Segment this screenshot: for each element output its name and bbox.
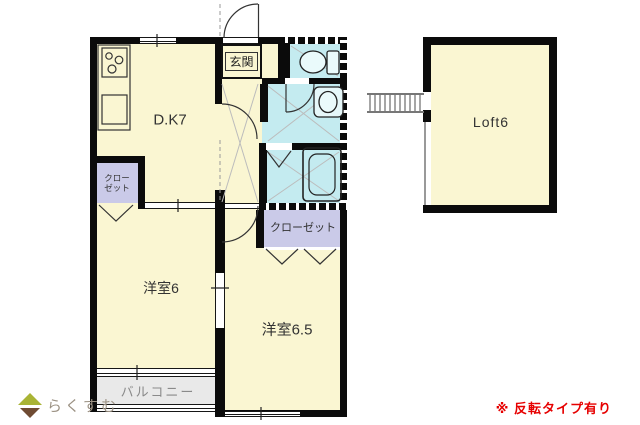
closet-w2-folding-door-left: [266, 249, 298, 264]
floorplan: 玄関: [0, 0, 640, 425]
kitchen-counter: [98, 45, 130, 130]
bathtub-icon: [303, 148, 341, 201]
toilet-icon: [300, 51, 339, 74]
closet-dk-label: クロー ゼット: [104, 173, 130, 193]
dk-door-arc: [222, 104, 257, 139]
mirror-type-note: ※ 反転タイプ有り: [496, 398, 612, 417]
kitchen-sink-icon: [102, 95, 127, 124]
window-ticks: [137, 34, 261, 420]
loft-label: Loft6: [473, 114, 509, 130]
toilet-door-arc: [286, 84, 314, 112]
entrance-door-arc: [224, 4, 258, 38]
balcony-label: バルコニー: [121, 382, 196, 401]
folding-door-marks: [99, 151, 336, 264]
ladder-icon: [367, 94, 424, 112]
site-logo-text: らくすむ: [47, 395, 119, 416]
closet-dk-folding-door: [99, 205, 133, 221]
counter-outline: [98, 45, 130, 130]
dk-label: D.K7: [153, 112, 186, 129]
w2-door-arc: [222, 206, 258, 242]
washbasin-icon: [314, 87, 343, 117]
house-logo-icon: [17, 392, 43, 419]
floorplan-annotations: [0, 0, 640, 425]
western-room-2-label: 洋室6.5: [262, 319, 313, 340]
site-logo: らくすむ: [17, 392, 119, 419]
closet-w2-label: クローゼット: [270, 219, 336, 235]
western-room-1-label: 洋室6: [143, 278, 179, 298]
closet-w2-folding-door-right: [304, 249, 336, 264]
